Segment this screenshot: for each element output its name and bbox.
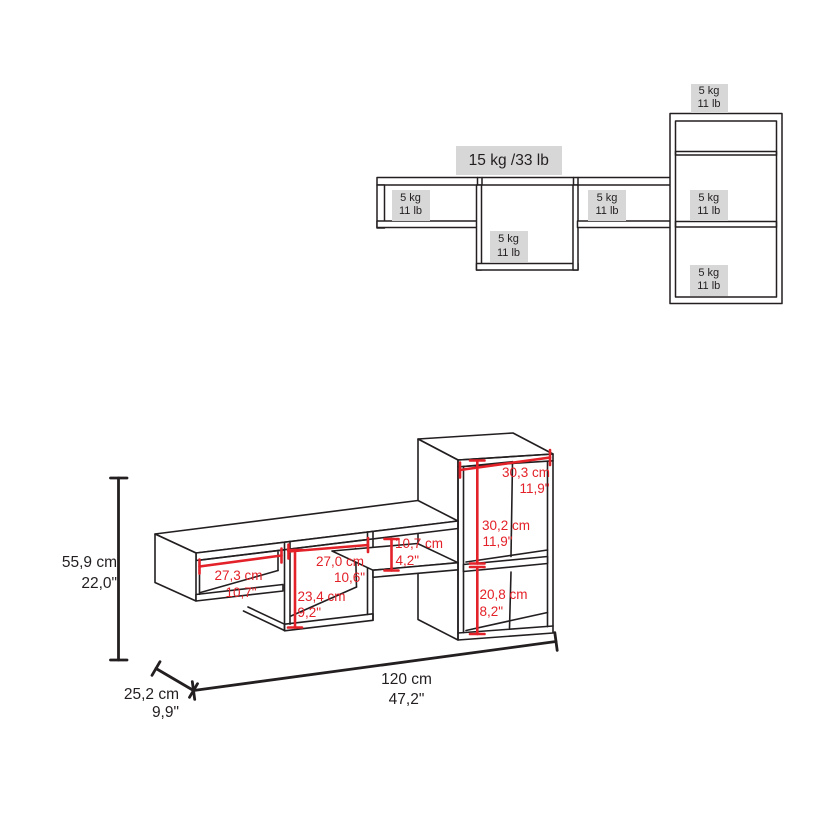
capacity-label-tall-unit-middle: 5 kg 11 lb bbox=[690, 190, 728, 221]
dim-overall-height-in: 22,0" bbox=[40, 576, 117, 592]
dim-tall-lower-height-cm: 20,8 cm bbox=[480, 588, 528, 602]
dim-tall-lower-height-in: 8,2" bbox=[480, 605, 504, 619]
dim-cube-width-cm: 27,0 cm bbox=[316, 555, 364, 569]
capacity-lb: 11 lb bbox=[399, 205, 422, 218]
capacity-kg: 5 kg bbox=[400, 192, 421, 205]
capacity-label-tall-unit-top: 5 kg 11 lb bbox=[691, 84, 728, 113]
capacity-label-left-compartment: 5 kg 11 lb bbox=[392, 190, 430, 221]
dim-cube-width-in: 10,6" bbox=[334, 571, 365, 585]
dim-left-width-in: 10,7" bbox=[226, 586, 257, 600]
capacity-label-tall-unit-bottom: 5 kg 11 lb bbox=[690, 265, 728, 296]
dim-tall-upper-height-cm: 30,2 cm bbox=[482, 519, 530, 533]
dim-tall-inner-width-cm: 30,3 cm bbox=[502, 466, 550, 480]
capacity-kg: 5 kg bbox=[498, 233, 519, 246]
dim-cube-height-in: 9,2" bbox=[298, 606, 322, 620]
dim-overall-width-in: 47,2" bbox=[356, 692, 457, 708]
capacity-lb: 11 lb bbox=[497, 247, 520, 260]
dim-tall-inner-width-in: 11,9" bbox=[520, 482, 550, 496]
dim-left-width-cm: 27,3 cm bbox=[215, 569, 263, 583]
dim-tall-upper-height-in: 11,9" bbox=[483, 535, 513, 549]
dim-overall-height-cm: 55,9 cm bbox=[40, 555, 117, 571]
furniture-dimension-sheet: 15 kg /33 lb 5 kg 11 lb 5 kg 11 lb 5 kg … bbox=[0, 0, 840, 840]
capacity-lb: 11 lb bbox=[697, 280, 720, 293]
dim-cube-height-cm: 23,4 cm bbox=[298, 590, 346, 604]
capacity-kg: 5 kg bbox=[698, 192, 719, 205]
capacity-lb: 11 lb bbox=[697, 205, 720, 218]
capacity-label-center-cube: 5 kg 11 lb bbox=[490, 231, 528, 262]
capacity-lb: 11 lb bbox=[697, 98, 720, 111]
dim-gap-height-cm: 10,7 cm bbox=[395, 537, 443, 551]
dim-overall-depth-in: 9,9" bbox=[104, 705, 179, 721]
total-capacity-label: 15 kg /33 lb bbox=[456, 146, 563, 176]
dim-overall-width-cm: 120 cm bbox=[356, 672, 457, 688]
capacity-kg: 5 kg bbox=[597, 192, 618, 205]
capacity-kg: 5 kg bbox=[699, 85, 720, 98]
capacity-kg: 5 kg bbox=[698, 267, 719, 280]
dim-gap-height-in: 4,2" bbox=[396, 554, 420, 568]
capacity-label-right-compartment: 5 kg 11 lb bbox=[588, 190, 626, 221]
dim-overall-depth-cm: 25,2 cm bbox=[104, 687, 179, 703]
capacity-lb: 11 lb bbox=[595, 205, 618, 218]
